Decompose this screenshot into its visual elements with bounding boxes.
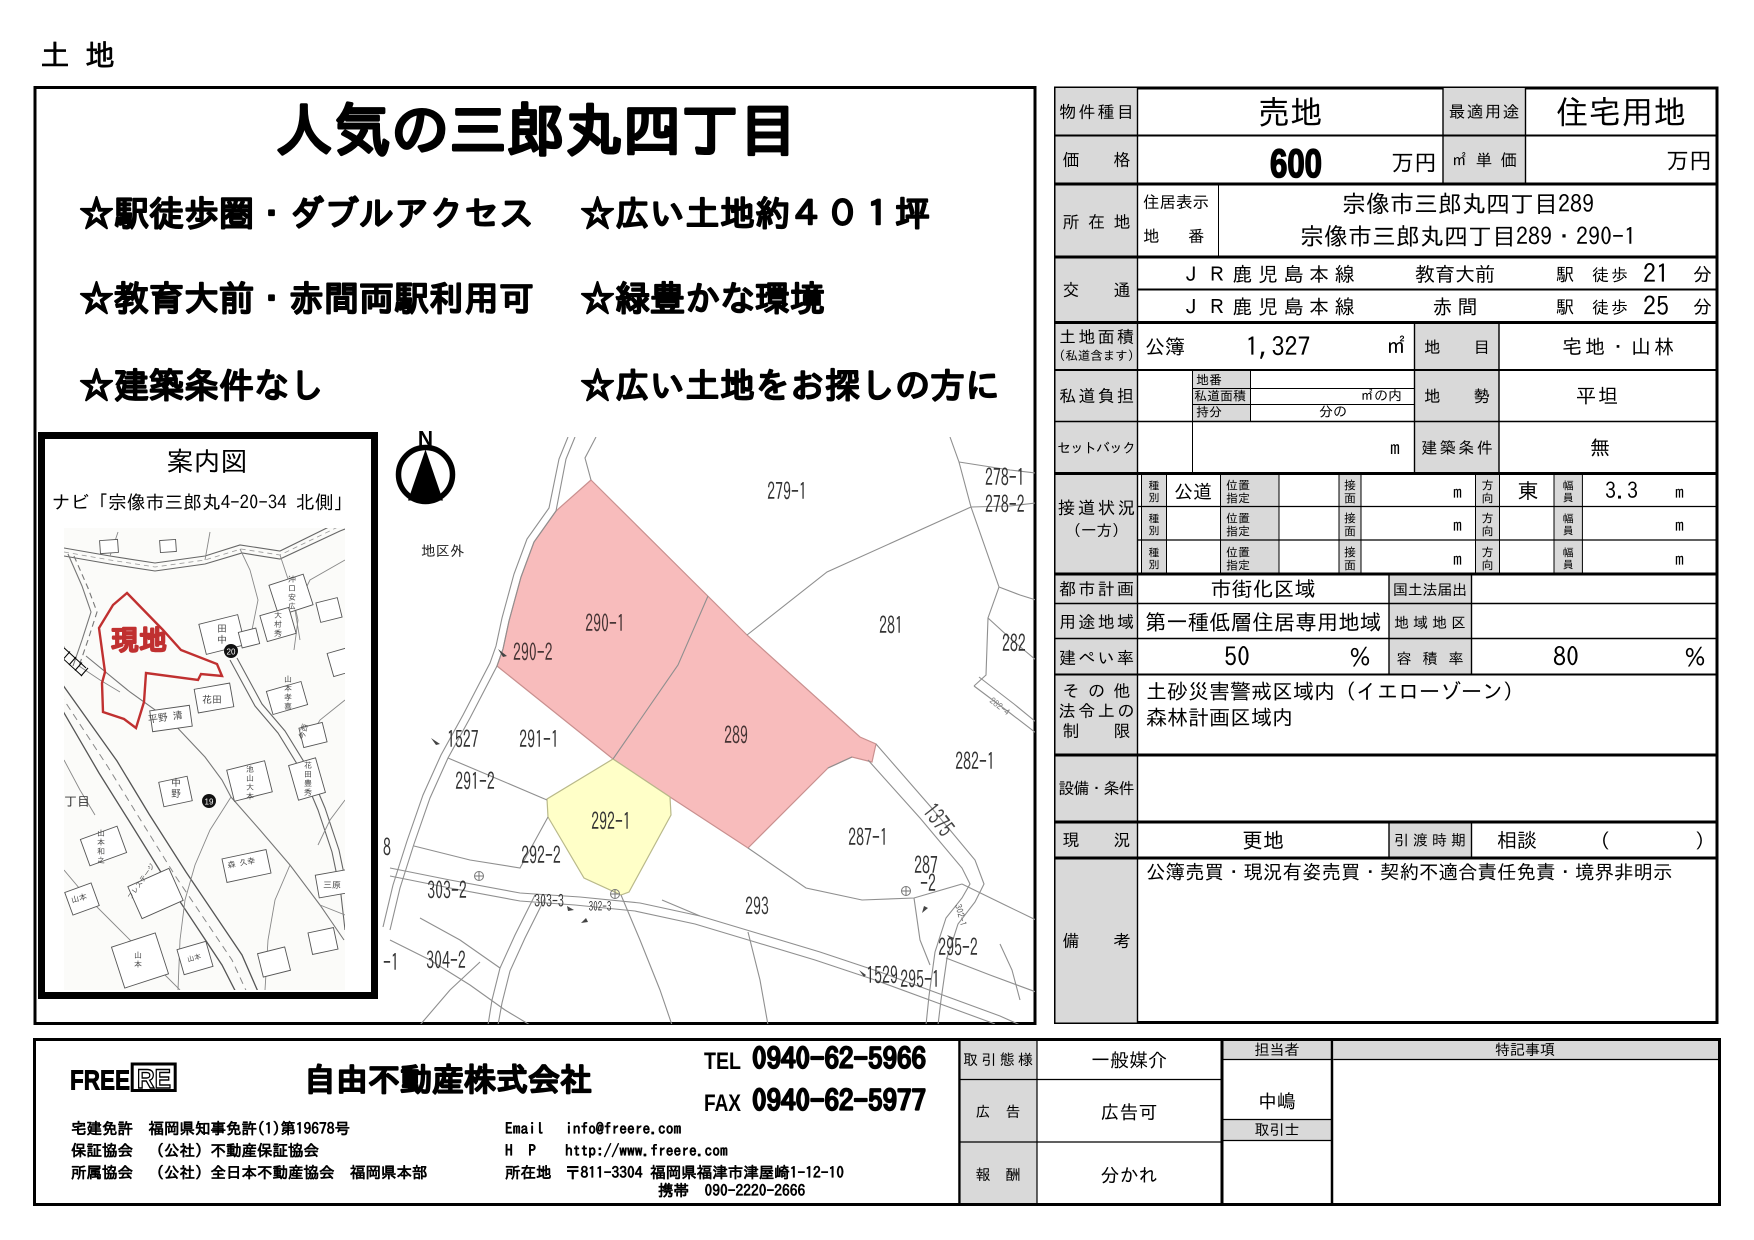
svg-text:19: 19 xyxy=(205,798,214,807)
svg-text:20: 20 xyxy=(227,648,236,657)
svg-text:N: N xyxy=(418,428,433,451)
svg-text:TEL: TEL xyxy=(704,1048,741,1075)
svg-text:600: 600 xyxy=(1270,142,1322,186)
svg-text:RE: RE xyxy=(137,1064,171,1094)
svg-text:FAX: FAX xyxy=(704,1090,741,1117)
svg-text:FREE: FREE xyxy=(70,1065,130,1096)
